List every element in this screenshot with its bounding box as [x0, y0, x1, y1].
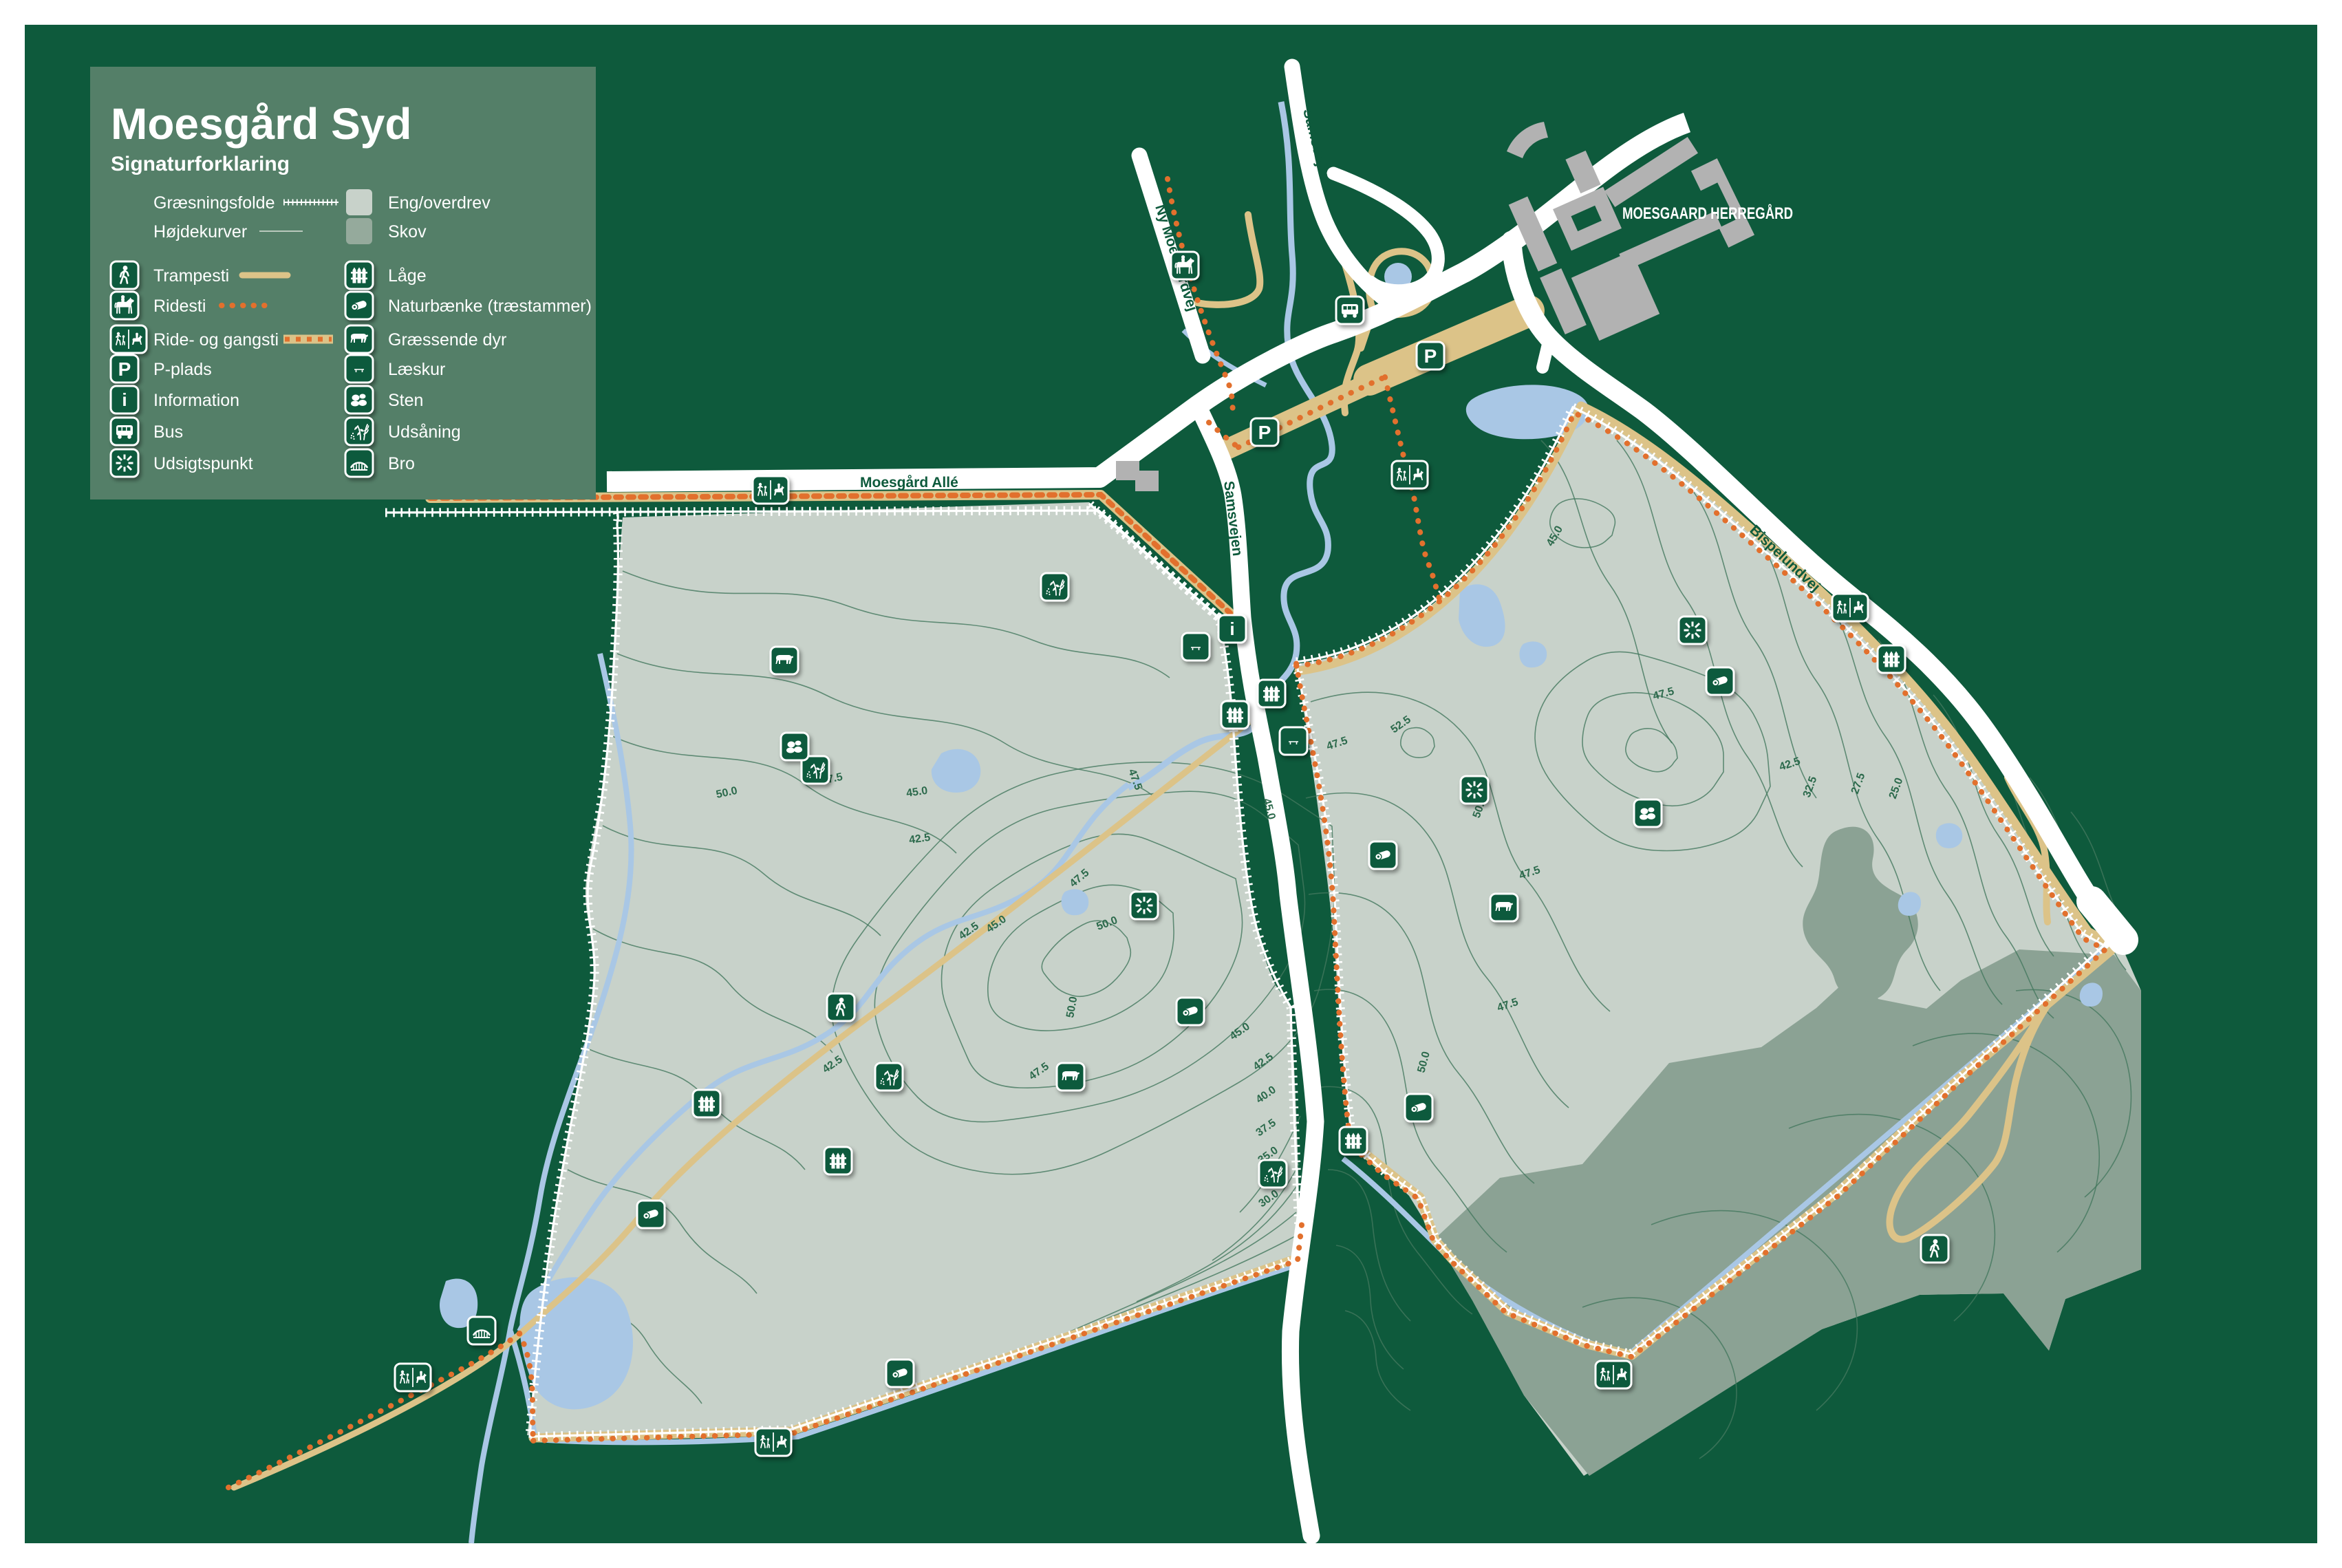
svg-text:Skov: Skov [388, 222, 427, 241]
svg-text:Ride- og gangsti: Ride- og gangsti [153, 330, 279, 350]
svg-text:Udsigtspunkt: Udsigtspunkt [153, 454, 253, 473]
svg-text:Information: Information [153, 391, 239, 410]
svg-text:Bus: Bus [153, 422, 183, 442]
svg-text:Eng/overdrev: Eng/overdrev [388, 193, 491, 213]
svg-text:Græsningsfolde: Græsningsfolde [153, 193, 275, 213]
svg-text:Moesgård Allé: Moesgård Allé [860, 475, 958, 491]
svg-text:P-plads: P-plads [153, 360, 212, 379]
svg-text:MOESGAARD HERREGÅRD: MOESGAARD HERREGÅRD [1622, 204, 1793, 223]
svg-text:Læskur: Læskur [388, 360, 445, 379]
svg-text:Signaturforklaring: Signaturforklaring [111, 153, 290, 175]
svg-text:Låge: Låge [388, 266, 427, 286]
svg-text:Udsåning: Udsåning [388, 422, 461, 442]
svg-text:Moesgård Syd: Moesgård Syd [111, 99, 411, 149]
svg-text:Græssende dyr: Græssende dyr [388, 330, 506, 350]
svg-text:Ridesti: Ridesti [153, 297, 206, 316]
svg-text:Bro: Bro [388, 454, 415, 473]
svg-text:Naturbænke (træstammer): Naturbænke (træstammer) [388, 297, 592, 316]
svg-text:Højdekurver: Højdekurver [153, 222, 247, 241]
svg-text:Sten: Sten [388, 391, 423, 410]
svg-text:Trampesti: Trampesti [153, 266, 229, 286]
